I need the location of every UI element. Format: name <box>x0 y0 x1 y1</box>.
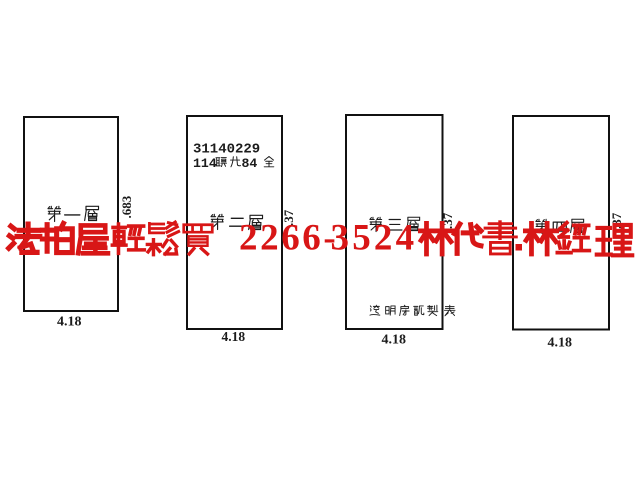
svg-text:4.18: 4.18 <box>382 333 407 348</box>
svg-text:4.18: 4.18 <box>222 329 246 344</box>
svg-text:3524: 3524 <box>331 218 418 259</box>
svg-text:.683: .683 <box>119 195 134 218</box>
svg-text:2266-: 2266- <box>239 218 338 259</box>
svg-text:4.18: 4.18 <box>548 336 573 351</box>
svg-text:84: 84 <box>242 156 258 171</box>
svg-text:4.18: 4.18 <box>57 315 82 330</box>
svg-text:114: 114 <box>193 156 217 171</box>
